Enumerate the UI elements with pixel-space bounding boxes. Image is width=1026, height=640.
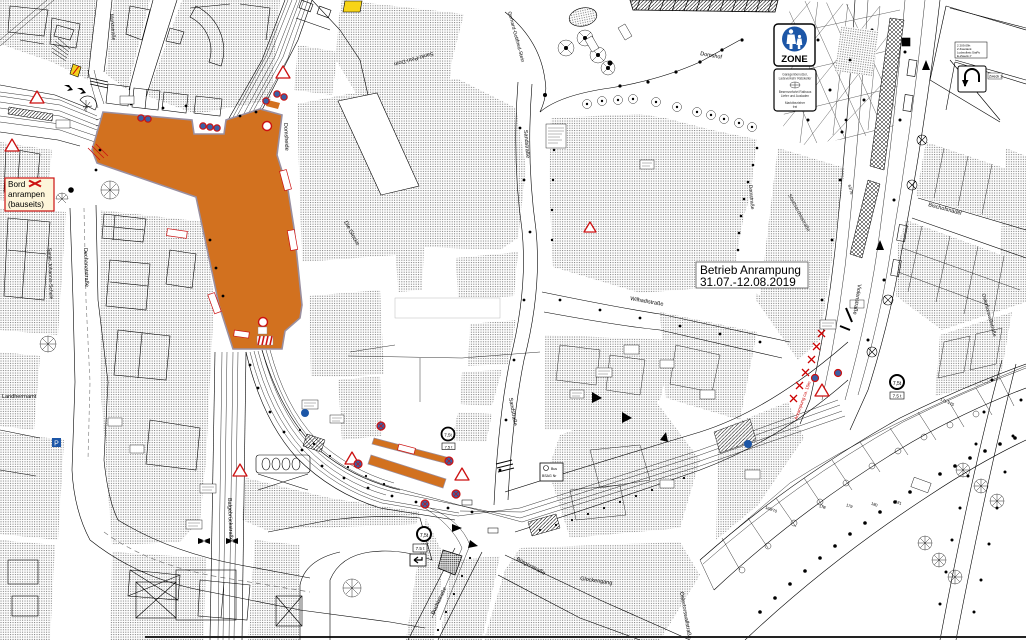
svg-text:Liefer und Ausladen: Liefer und Ausladen bbox=[781, 94, 809, 98]
svg-text:ZONE: ZONE bbox=[781, 54, 807, 65]
svg-text:31.07.-12.08.2019: 31.07.-12.08.2019 bbox=[700, 275, 796, 289]
svg-text:7,5t: 7,5t bbox=[444, 433, 452, 438]
svg-text:7.5 t: 7.5 t bbox=[445, 445, 454, 450]
svg-text:7.5 t: 7.5 t bbox=[893, 394, 903, 399]
svg-text:Zweck 1: Zweck 1 bbox=[989, 75, 1002, 79]
svg-text:7,5t: 7,5t bbox=[420, 533, 429, 539]
svg-text:anrampen: anrampen bbox=[8, 190, 45, 199]
svg-text:Bord: Bord bbox=[8, 180, 26, 189]
svg-text:E-Zweck-Y: E-Zweck-Y bbox=[957, 54, 972, 58]
svg-text:P: P bbox=[54, 441, 59, 448]
svg-text:7.5 t: 7.5 t bbox=[416, 546, 426, 551]
svg-text:7,5t: 7,5t bbox=[893, 381, 902, 387]
svg-text:Landherrnamt: Landherrnamt bbox=[2, 394, 37, 400]
svg-text:frei: frei bbox=[793, 105, 798, 109]
svg-text:Bus: Bus bbox=[551, 467, 557, 471]
svg-text:(bauseits): (bauseits) bbox=[8, 200, 44, 209]
svg-text:Ladeverkehr Ratskeller: Ladeverkehr Ratskeller bbox=[779, 77, 813, 81]
svg-text:BSAG Nr: BSAG Nr bbox=[542, 474, 557, 478]
